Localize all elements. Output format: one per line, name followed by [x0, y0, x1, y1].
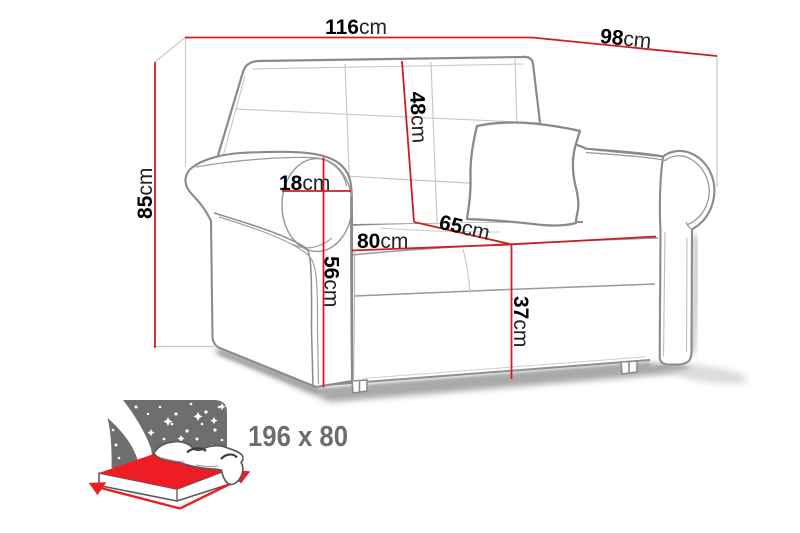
svg-text:80cm: 80cm: [357, 230, 408, 253]
svg-text:85cm: 85cm: [134, 168, 157, 219]
svg-text:196 x 80: 196 x 80: [248, 421, 348, 453]
svg-text:98cm: 98cm: [599, 25, 652, 53]
svg-text:56cm: 56cm: [320, 256, 343, 307]
svg-text:116cm: 116cm: [325, 16, 387, 39]
svg-text:48cm: 48cm: [405, 91, 431, 143]
svg-text:37cm: 37cm: [509, 296, 532, 347]
